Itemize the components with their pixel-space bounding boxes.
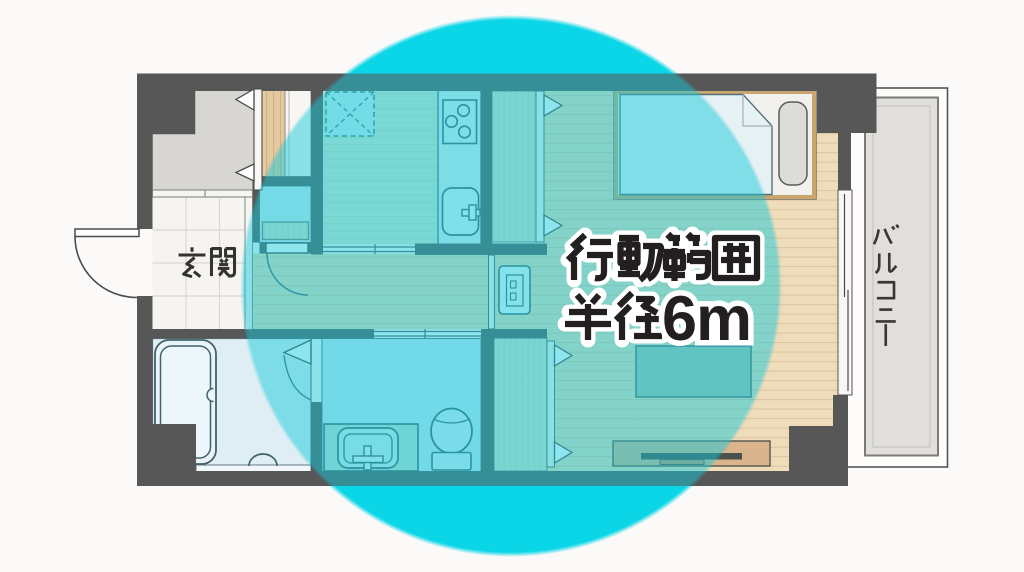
- svg-text:6m: 6m: [662, 284, 751, 354]
